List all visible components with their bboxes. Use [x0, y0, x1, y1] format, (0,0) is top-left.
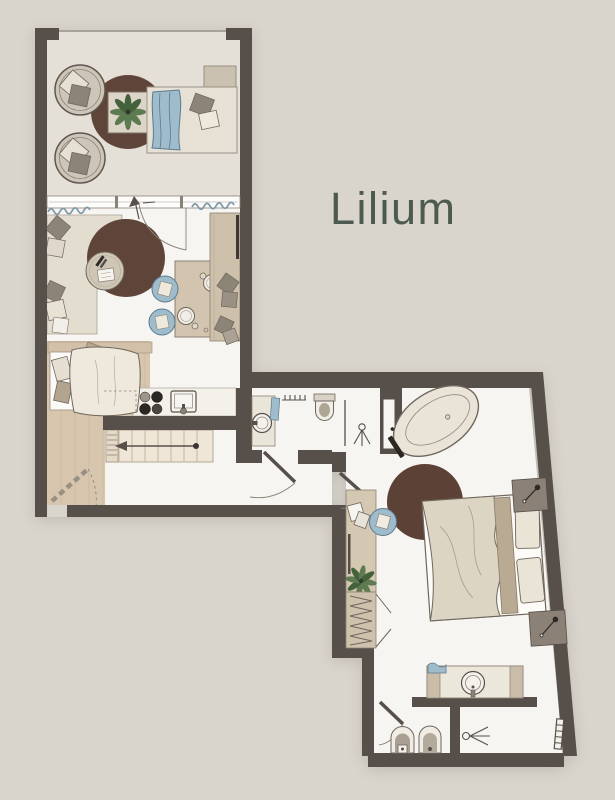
toilet-icon	[314, 394, 335, 421]
nightstand	[529, 610, 567, 646]
dining-chair	[152, 276, 178, 302]
book-icon	[97, 268, 115, 282]
plate-icon	[178, 308, 195, 325]
stairs	[106, 430, 213, 462]
double-bed	[422, 493, 547, 621]
plan-title: Lilium	[330, 183, 550, 235]
tv-cabinet	[210, 213, 240, 345]
desk-chair	[370, 509, 397, 536]
balcony-chair	[55, 65, 105, 115]
bidet-icon	[419, 726, 441, 753]
daybed	[147, 87, 237, 153]
single-bed-duvet	[70, 347, 140, 416]
nightstand	[512, 478, 548, 512]
tv-icon	[236, 215, 239, 259]
duvet	[422, 496, 507, 621]
pillow	[516, 557, 544, 603]
balcony-chair	[55, 133, 105, 183]
towel-icon	[270, 398, 280, 421]
dining-chair	[149, 309, 175, 335]
plant-icon	[110, 94, 146, 130]
bed-nook	[50, 342, 140, 416]
desk	[345, 490, 378, 597]
side-table	[204, 66, 236, 88]
toilet-icon	[391, 727, 414, 754]
kitchen-sink-icon	[171, 391, 196, 414]
entry-opening	[47, 505, 67, 517]
blanket	[152, 90, 181, 150]
coffee-table	[86, 252, 124, 290]
plant-table	[108, 92, 149, 133]
floorplan-lilium	[0, 0, 615, 800]
bedroom-vanity	[427, 663, 523, 698]
